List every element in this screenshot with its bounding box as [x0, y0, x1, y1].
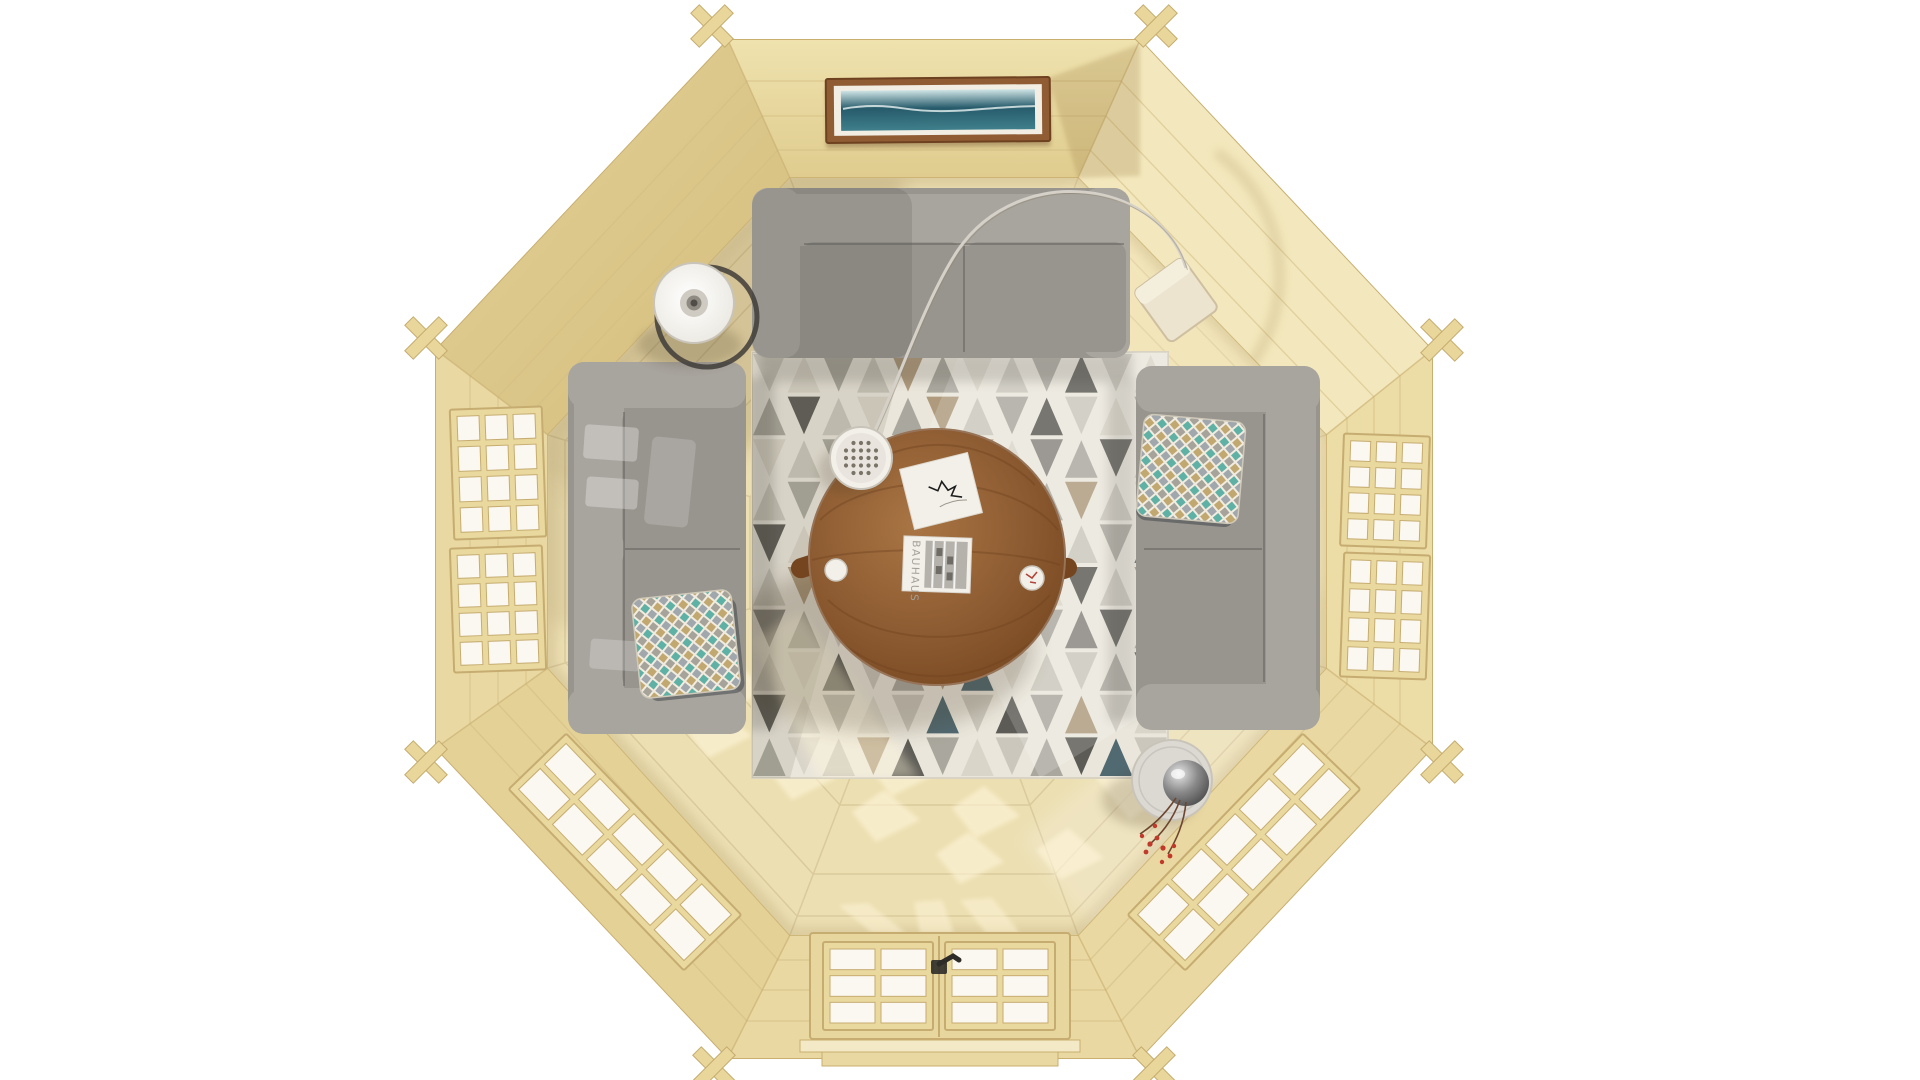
window-pane	[514, 582, 537, 606]
window-pane	[485, 415, 508, 440]
window-pane	[515, 611, 538, 635]
window-pane	[1400, 620, 1421, 644]
window-pane	[459, 613, 482, 637]
sofa-top-seat-right	[966, 242, 1126, 352]
window-pane	[458, 584, 481, 608]
window-pane	[1347, 519, 1368, 540]
window-pane	[460, 642, 483, 666]
lamp-perforation-dot	[844, 463, 848, 467]
painting-art	[841, 89, 1035, 131]
lamp-perforation-dot	[866, 448, 870, 452]
pillow-right-face	[1136, 414, 1247, 525]
sofa-right-arm-top	[1136, 366, 1320, 412]
window-pane	[486, 583, 509, 607]
lamp-perforation-dot	[851, 463, 855, 467]
sofa-right-seat-lower	[1142, 550, 1264, 684]
window-pane	[487, 476, 510, 501]
window-pane	[952, 1002, 997, 1023]
window-pane	[952, 976, 997, 997]
sofa-right-back	[1266, 376, 1316, 720]
book-cover-photo	[924, 541, 968, 589]
window-pane	[881, 976, 926, 997]
window-pane	[1399, 649, 1420, 673]
window-pane	[1350, 560, 1371, 584]
lamp-perforation-dot	[874, 456, 878, 460]
pillow-left-face	[631, 589, 741, 699]
window-pane	[487, 612, 510, 636]
window-pane	[1374, 494, 1395, 515]
lamp-perforation-dot	[874, 448, 878, 452]
window-pane	[516, 505, 539, 530]
lamp-perforation-dot	[866, 456, 870, 460]
sofa-right-arm-bottom	[1136, 684, 1320, 730]
lamp-perforation-dot	[851, 441, 855, 445]
window-pane	[1003, 949, 1048, 970]
window-pane	[486, 445, 509, 470]
lamp-perforation-dot	[859, 456, 863, 460]
window-pane	[1401, 469, 1422, 490]
window-pane	[485, 554, 508, 578]
window-pane	[1376, 561, 1397, 585]
window-pane	[488, 506, 511, 531]
lamp-perforation-dot	[866, 471, 870, 475]
window-pane	[881, 1002, 926, 1023]
window-pane	[1374, 619, 1395, 643]
table-foot-left	[825, 559, 847, 581]
window-pane	[1349, 589, 1370, 613]
window-pane	[1401, 591, 1422, 615]
lamp-perforation-dot	[866, 463, 870, 467]
lamp-perforation-dot	[859, 448, 863, 452]
left-wall-window-lower	[450, 545, 546, 672]
left-wall-window-upper	[450, 406, 546, 539]
cabin-render: BAUHAUS	[0, 0, 1920, 1080]
window-pane	[513, 553, 536, 577]
lamp-perforation-dot	[859, 463, 863, 467]
lamp-perforation-dot	[859, 471, 863, 475]
lamp-perforation-dot	[874, 463, 878, 467]
cone-lamp-bulb	[691, 300, 698, 307]
window-pane	[830, 976, 875, 997]
pillow-right	[1135, 414, 1246, 528]
sphere-vase	[1163, 760, 1209, 806]
door-right-panes	[945, 942, 1055, 1030]
window-pane	[1003, 976, 1048, 997]
door-step	[822, 1052, 1058, 1066]
sofa-right	[1135, 366, 1320, 730]
window-pane	[513, 414, 536, 439]
lamp-perforation-dot	[851, 448, 855, 452]
window-pane	[1375, 468, 1396, 489]
sofa-top	[752, 188, 1130, 358]
window-pane	[1376, 442, 1397, 463]
window-pane	[515, 475, 538, 500]
sphere-highlight	[1171, 769, 1185, 779]
lamp-perforation-dot	[866, 441, 870, 445]
window-pane	[1402, 562, 1423, 586]
cabin-svg: BAUHAUS	[0, 0, 1920, 1080]
lamp-perforation-dot	[859, 441, 863, 445]
lamp-perforation-dot	[844, 456, 848, 460]
window-pane	[457, 555, 480, 579]
sofa-left	[568, 362, 746, 734]
window-pane	[460, 507, 483, 532]
window-pane	[458, 446, 481, 471]
lamp-perforation-dot	[851, 471, 855, 475]
window-pane	[881, 949, 926, 970]
seascape-painting	[826, 77, 1051, 148]
lamp-perforation-dot	[844, 448, 848, 452]
window-pane	[830, 1002, 875, 1023]
window-pane	[1350, 441, 1371, 462]
window-pane	[1373, 520, 1394, 541]
door-left-panes	[823, 942, 933, 1030]
window-pane	[516, 640, 539, 664]
pillow-left	[631, 589, 745, 703]
door-threshold	[800, 1040, 1080, 1052]
sofa-top-shade	[752, 188, 912, 358]
window-pane	[459, 477, 482, 502]
window-pane	[1375, 590, 1396, 614]
window-pane	[1399, 521, 1420, 542]
window-pane	[1348, 493, 1369, 514]
sofa-left-back	[574, 372, 624, 724]
window-pane	[1348, 618, 1369, 642]
window-pane	[1402, 443, 1423, 464]
window-pane	[830, 949, 875, 970]
lamp-perforation-dot	[851, 456, 855, 460]
book-title: BAUHAUS	[908, 540, 922, 602]
right-sofa-shadow	[1108, 380, 1136, 720]
window-pane	[1400, 495, 1421, 516]
window-pane	[1373, 648, 1394, 672]
window-pane	[1003, 1002, 1048, 1023]
right-wall-window-upper	[1340, 434, 1430, 549]
window-pane	[514, 444, 537, 469]
window-pane	[457, 416, 480, 441]
window-pane	[488, 641, 511, 665]
window-pane	[1347, 647, 1368, 671]
right-wall-window-lower	[1340, 553, 1430, 680]
sofa-left-arm-top	[568, 362, 746, 408]
window-pane	[1349, 467, 1370, 488]
